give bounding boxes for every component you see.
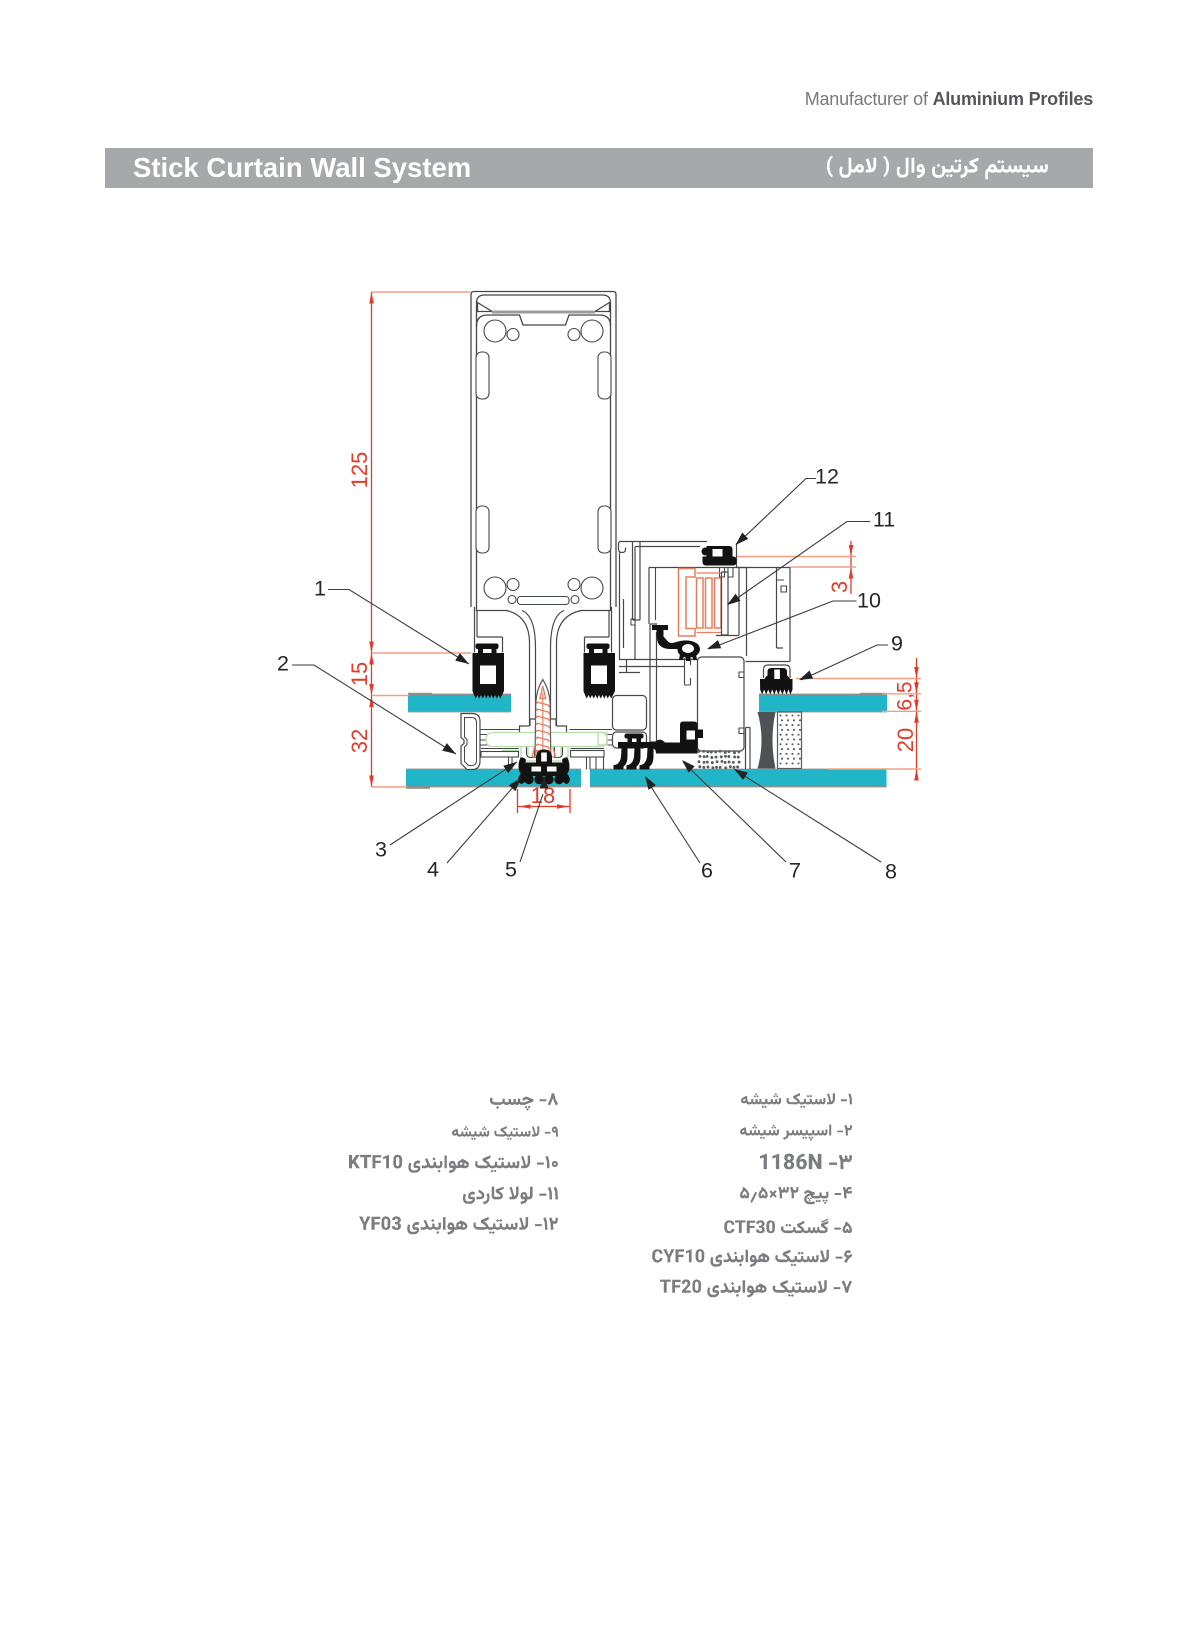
svg-text:4: 4 xyxy=(427,858,439,882)
svg-text:10: 10 xyxy=(857,589,881,613)
svg-text:6: 6 xyxy=(701,859,713,883)
svg-text:7: 7 xyxy=(789,859,801,883)
svg-text:8: 8 xyxy=(885,860,897,884)
svg-text:15: 15 xyxy=(347,662,372,686)
svg-text:125: 125 xyxy=(347,452,372,489)
svg-text:32: 32 xyxy=(347,729,372,753)
svg-text:1: 1 xyxy=(314,577,326,601)
svg-text:5: 5 xyxy=(505,858,517,882)
svg-text:9: 9 xyxy=(891,632,903,656)
svg-text:12: 12 xyxy=(815,465,839,489)
svg-text:20: 20 xyxy=(893,728,918,752)
svg-text:3: 3 xyxy=(827,581,852,593)
svg-text:3: 3 xyxy=(375,838,387,862)
svg-text:11: 11 xyxy=(873,508,895,532)
svg-text:6,5: 6,5 xyxy=(894,681,917,710)
svg-text:2: 2 xyxy=(277,652,289,676)
